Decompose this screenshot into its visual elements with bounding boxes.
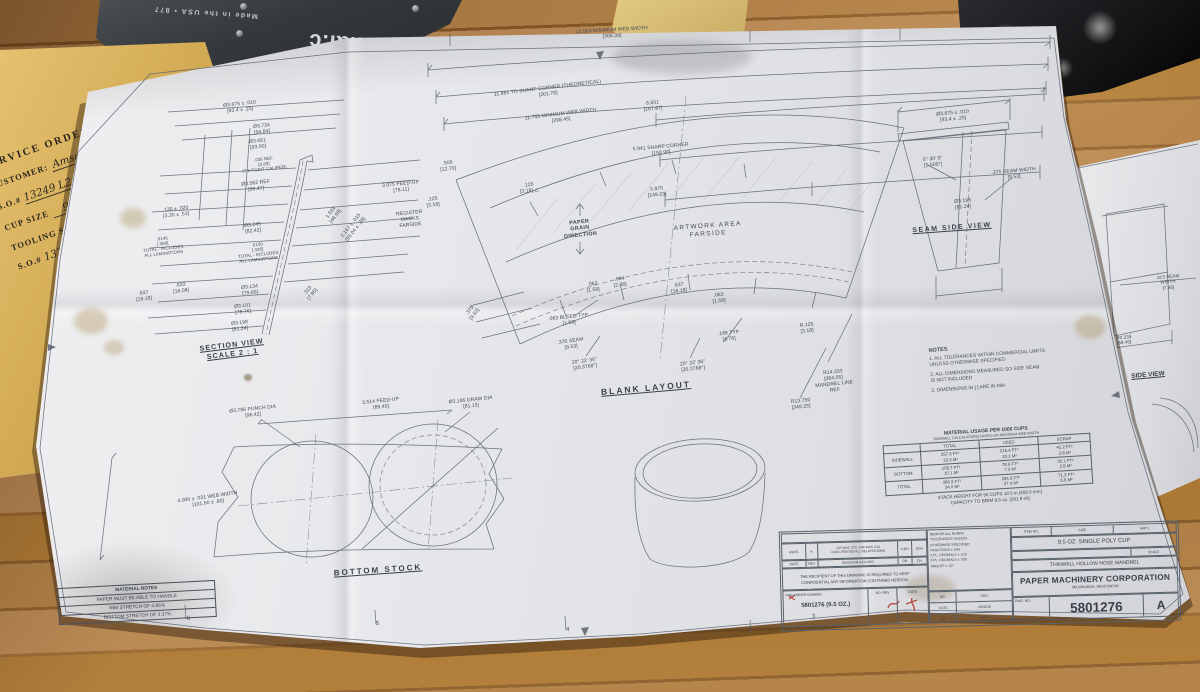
dimension-label: 5.875 [149.23] <box>647 186 667 199</box>
revision-drawn-by: KDH <box>898 541 912 556</box>
sign-value: KDH <box>957 590 1012 602</box>
rev-header: REV <box>806 561 818 567</box>
sign-label: CH. <box>930 614 958 624</box>
paper-grain-direction-label: PAPER GRAIN DIRECTION <box>562 218 597 240</box>
dimension-label: .063 [1.59] <box>586 281 600 294</box>
item-no-label: ITEM NO. <box>1012 527 1052 536</box>
row-label: TOTAL <box>885 479 923 495</box>
dimension-label: .094 [2.38] <box>613 276 627 289</box>
dimension-label: Ø3.101 [78.76] <box>234 303 252 316</box>
dimension-label: Ø3.734 [94.84] <box>253 123 271 136</box>
pmc-order-value: 5801276 (9.5 OZ.) <box>786 601 866 609</box>
dimension-label: .637 [16.18] <box>135 290 152 303</box>
revision-letter-cell: A <box>1144 593 1178 616</box>
dimension-label: Ø3.198 [81.24] <box>231 320 249 333</box>
dimension-label: Ø3.661 [93.00] <box>249 138 267 151</box>
date-header: DATE <box>783 561 807 568</box>
dimension-label: Ø3.198 [81.24] <box>954 198 972 211</box>
signature-block: DR. KDH DATE 4/9/2015 CH. APP'D <box>928 589 1013 623</box>
dr-header: DR. <box>899 558 913 564</box>
sign-label: DATE <box>930 603 958 614</box>
cell: 71.3 FT² 6.6 M² <box>1040 469 1093 486</box>
dimension-label: .633 [16.08] <box>172 282 189 295</box>
no-rev-cell: NO. REV <box>868 588 899 624</box>
revision-description: .125 WAS .375, .040 WAS .010 .0130 UPDAT… <box>818 541 899 558</box>
dimension-label: Ø3.134 [79.60] <box>241 284 259 297</box>
drawing-number: 5801276 <box>1049 594 1144 619</box>
dimension-label: .125 [3.18] △ <box>519 182 539 196</box>
cell: 294.9 FT² 27.4 M² <box>981 472 1041 489</box>
date-cell: DATE <box>898 587 929 623</box>
cell: 366.3 FT² 34.0 M² <box>922 476 982 493</box>
dwg-no-label: DWG. NO. <box>1014 597 1050 620</box>
revision-checked-by: KDH <box>912 540 926 555</box>
title-block: 4/9/15 A .125 WAS .375, .040 WAS .010 .0… <box>779 520 1182 631</box>
sign-value: 4/9/2015 <box>957 601 1012 613</box>
dimension-label: .063 [1.59] <box>712 292 726 305</box>
dimension-label: 6.601 [167.67] <box>643 100 663 113</box>
dimension-label: .500 [12.70] <box>439 160 456 173</box>
dimension-label: 5° 30' 0" [5.500°] <box>923 156 943 169</box>
ch-header: CH. <box>913 557 927 563</box>
dimension-label: .188 TYP [4.76] <box>718 330 741 344</box>
zone-number: 4 <box>566 627 570 633</box>
dimension-label: R.125 [3.18] <box>800 322 815 335</box>
dimension-label: .125 [3.18] <box>426 196 440 209</box>
dimension-label: Ø3.245 [82.42] <box>244 222 262 235</box>
tolerance-block: REMOVE ALL BURRS TOLERANCES UNLESS OTHER… <box>927 527 1013 591</box>
dimension-label: .637 [16.18] <box>670 282 687 295</box>
title-fields: ITEM NO. SIZE MAT'L 9.5 OZ. SINGLE POLY … <box>1011 522 1180 621</box>
material-usage-table: MATERIAL USAGE PER 1000 CUPS SIDEWALL CA… <box>882 422 1094 511</box>
zone-number: 6 <box>187 616 191 622</box>
pmc-order-label: PMC ORDER NUMBER <box>785 591 865 597</box>
scale-label: SCALE <box>1131 548 1177 556</box>
order-number-row: PMC ORDER NUMBER 5801276 (9.5 OZ.) NO. R… <box>782 586 929 627</box>
revision-letter: A <box>806 544 818 559</box>
zone-number: 5 <box>376 621 380 627</box>
dimension-label: R13.750 [349.25] <box>791 398 812 412</box>
sign-label: DR. <box>929 592 957 603</box>
revision-date: 4/9/15 <box>782 544 806 560</box>
